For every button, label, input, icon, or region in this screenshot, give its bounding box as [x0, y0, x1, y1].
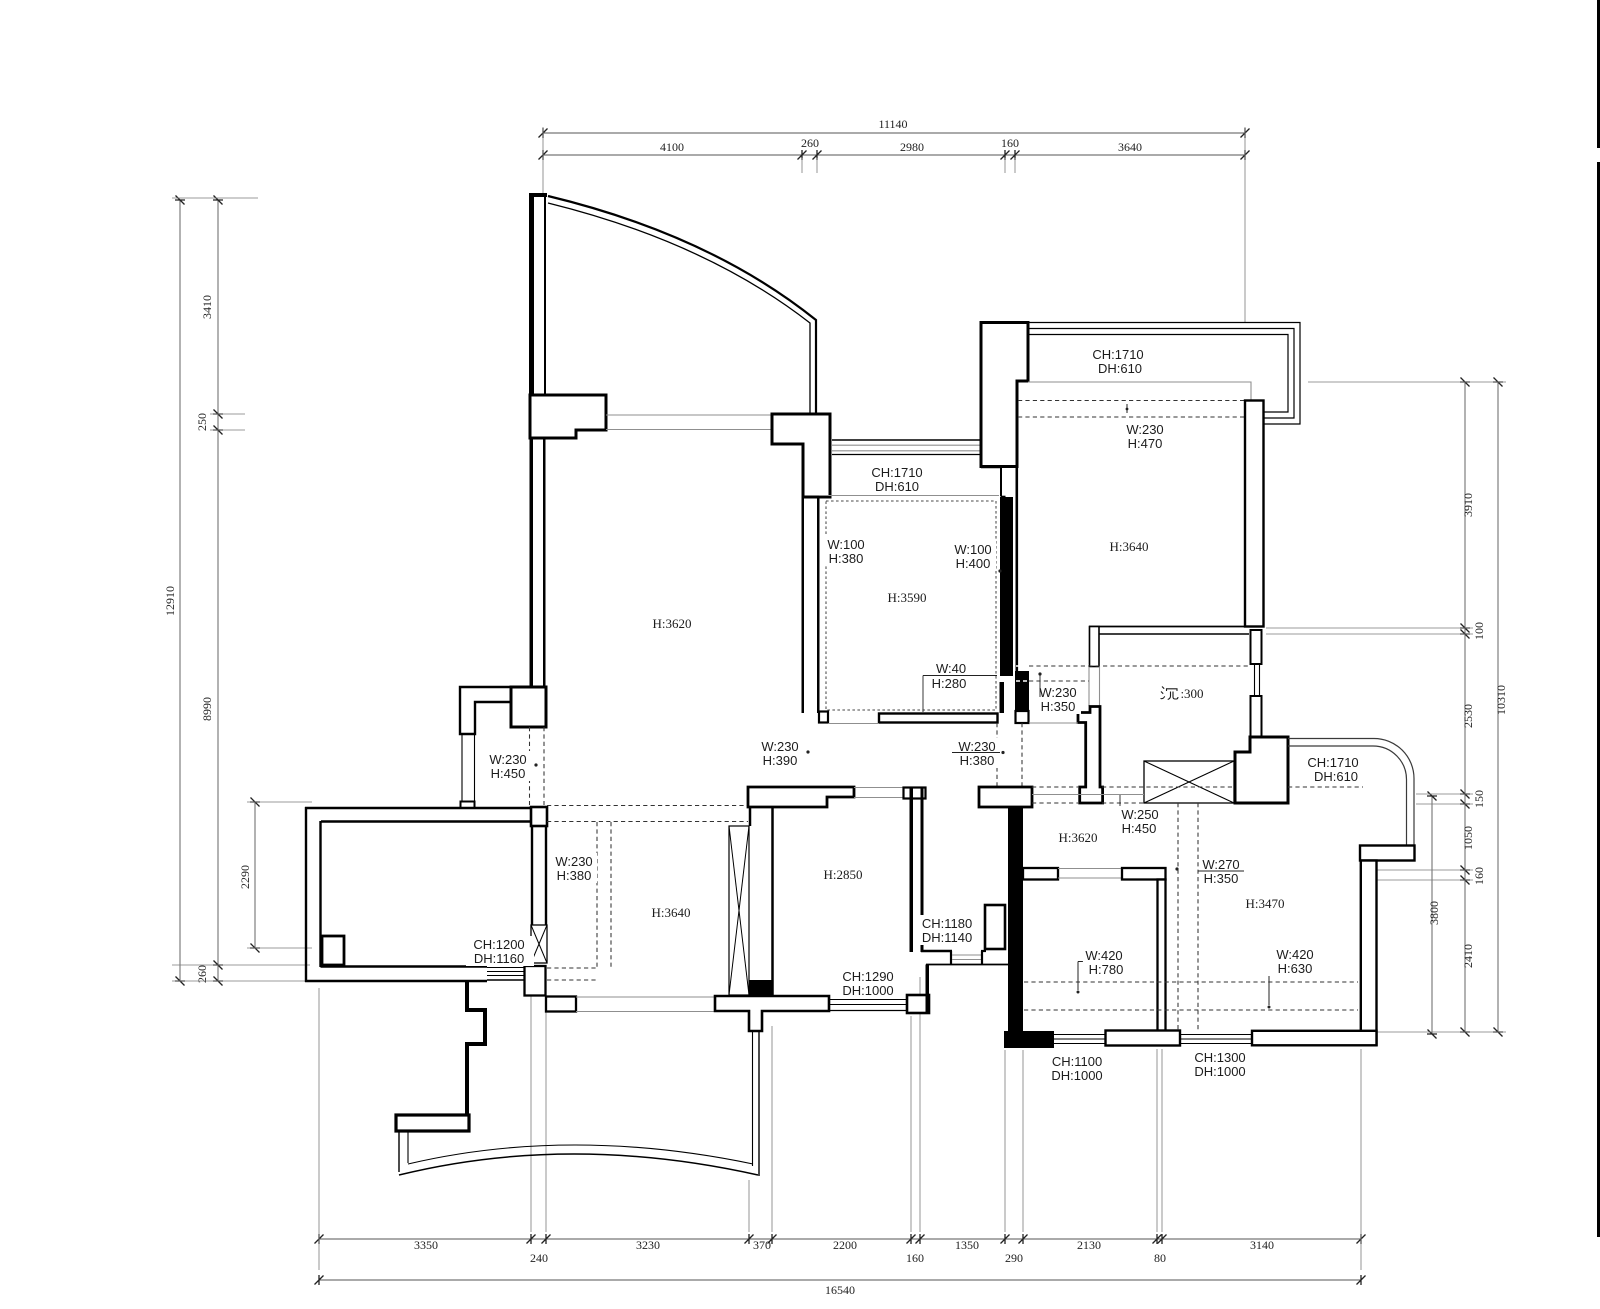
svg-text:DH:1000: DH:1000 — [1051, 1068, 1102, 1083]
svg-text:150: 150 — [1472, 790, 1486, 808]
svg-text:W:270: W:270 — [1202, 857, 1239, 872]
svg-text:160: 160 — [1001, 136, 1019, 150]
svg-text::300: :300 — [1180, 686, 1203, 701]
svg-text:CH:1710: CH:1710 — [1307, 755, 1358, 770]
svg-text:100: 100 — [1472, 622, 1486, 640]
svg-text:370: 370 — [753, 1238, 771, 1252]
svg-text:16540: 16540 — [825, 1283, 855, 1297]
svg-text:2290: 2290 — [238, 865, 252, 889]
svg-text:H:3640: H:3640 — [652, 905, 691, 920]
svg-text:H:3590: H:3590 — [888, 590, 927, 605]
svg-text:11140: 11140 — [878, 117, 907, 131]
svg-text:2130: 2130 — [1077, 1238, 1101, 1252]
svg-text:H:3640: H:3640 — [1110, 539, 1149, 554]
svg-text:H:780: H:780 — [1089, 962, 1124, 977]
svg-text:8990: 8990 — [200, 697, 214, 721]
svg-text:H:3470: H:3470 — [1246, 896, 1285, 911]
svg-text:DH:1140: DH:1140 — [922, 930, 972, 945]
svg-text:3230: 3230 — [636, 1238, 660, 1252]
svg-text:4100: 4100 — [660, 140, 684, 154]
svg-text:CH:1710: CH:1710 — [871, 465, 922, 480]
svg-text:DH:1000: DH:1000 — [1194, 1064, 1245, 1079]
svg-text:250: 250 — [195, 413, 209, 431]
svg-text:W:230: W:230 — [761, 739, 798, 754]
svg-text:2410: 2410 — [1461, 944, 1475, 968]
svg-text:290: 290 — [1005, 1251, 1023, 1265]
svg-text:W:420: W:420 — [1085, 948, 1122, 963]
svg-text:H:390: H:390 — [763, 753, 798, 768]
svg-text:CH:1200: CH:1200 — [473, 937, 524, 952]
svg-text:12910: 12910 — [163, 586, 177, 616]
svg-text:H:380: H:380 — [829, 551, 864, 566]
svg-text:H:2850: H:2850 — [824, 867, 863, 882]
svg-text:260: 260 — [195, 965, 209, 983]
svg-text:H:280: H:280 — [932, 676, 967, 691]
svg-text:2530: 2530 — [1461, 704, 1475, 728]
svg-text:2980: 2980 — [900, 140, 924, 154]
svg-text:W:420: W:420 — [1276, 947, 1313, 962]
svg-text:H:400: H:400 — [956, 556, 991, 571]
svg-text:160: 160 — [1472, 867, 1486, 885]
svg-text:3410: 3410 — [200, 295, 214, 319]
svg-text:160: 160 — [906, 1251, 924, 1265]
svg-text:DH:1160: DH:1160 — [474, 951, 524, 966]
svg-text:H:350: H:350 — [1204, 871, 1239, 886]
svg-text:H:470: H:470 — [1128, 436, 1163, 451]
svg-text:80: 80 — [1154, 1251, 1166, 1265]
svg-text:3140: 3140 — [1250, 1238, 1274, 1252]
svg-text:10310: 10310 — [1494, 685, 1508, 715]
svg-text:W:250: W:250 — [1121, 807, 1158, 822]
svg-text:1050: 1050 — [1461, 826, 1475, 850]
svg-text:260: 260 — [801, 136, 819, 150]
svg-text:W:230: W:230 — [1039, 685, 1076, 700]
svg-text:H:630: H:630 — [1278, 961, 1313, 976]
svg-text:W:40: W:40 — [936, 661, 966, 676]
svg-text:H:350: H:350 — [1041, 699, 1076, 714]
svg-text:3800: 3800 — [1427, 901, 1441, 925]
svg-text:CH:1300: CH:1300 — [1194, 1050, 1245, 1065]
svg-text:CH:1180: CH:1180 — [922, 916, 972, 931]
svg-text:H:380: H:380 — [960, 753, 995, 768]
svg-text:H:3620: H:3620 — [653, 616, 692, 631]
svg-text:DH:610: DH:610 — [875, 479, 919, 494]
svg-text:240: 240 — [530, 1251, 548, 1265]
svg-text:2200: 2200 — [833, 1238, 857, 1252]
svg-text:H:450: H:450 — [491, 766, 526, 781]
svg-text:1350: 1350 — [955, 1238, 979, 1252]
svg-text:3350: 3350 — [414, 1238, 438, 1252]
svg-text:CH:1100: CH:1100 — [1052, 1054, 1102, 1069]
svg-text:CH:1290: CH:1290 — [842, 969, 893, 984]
svg-text:W:100: W:100 — [827, 537, 864, 552]
svg-text:W:230: W:230 — [958, 739, 995, 754]
svg-text:DH:610: DH:610 — [1314, 769, 1358, 784]
svg-text:W:230: W:230 — [489, 752, 526, 767]
svg-text:3640: 3640 — [1118, 140, 1142, 154]
svg-text:DH:610: DH:610 — [1098, 361, 1142, 376]
svg-text:W:230: W:230 — [555, 854, 592, 869]
svg-text:CH:1710: CH:1710 — [1092, 347, 1143, 362]
svg-text:H:450: H:450 — [1122, 821, 1157, 836]
svg-text:W:100: W:100 — [954, 542, 991, 557]
svg-text:W:230: W:230 — [1126, 422, 1163, 437]
svg-text:3910: 3910 — [1461, 493, 1475, 517]
svg-text:DH:1000: DH:1000 — [842, 983, 893, 998]
svg-text:H:3620: H:3620 — [1059, 830, 1098, 845]
svg-text:H:380: H:380 — [557, 868, 592, 883]
